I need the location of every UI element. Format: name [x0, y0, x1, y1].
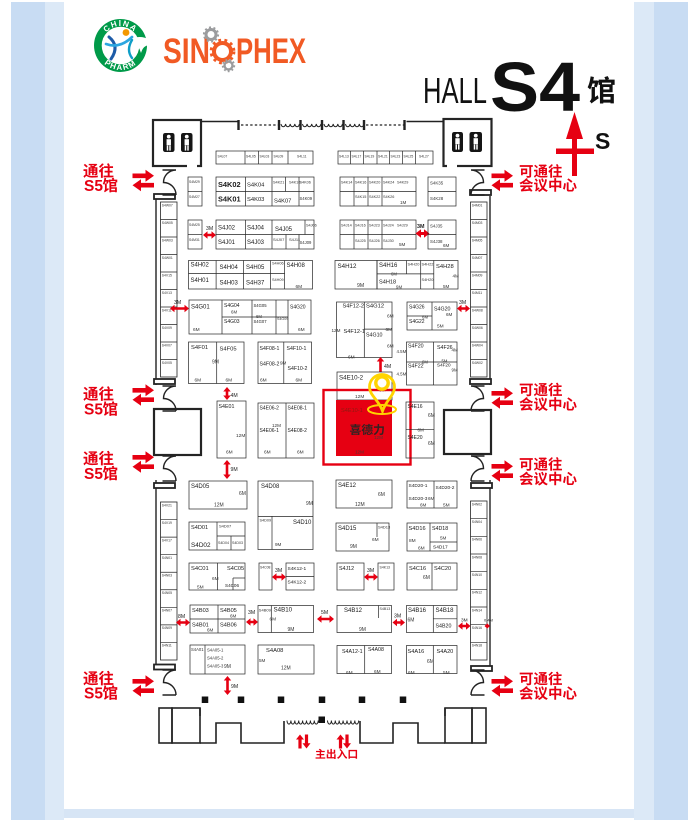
- svg-text:S4J12: S4J12: [339, 566, 354, 572]
- svg-text:S4F05: S4F05: [220, 347, 237, 353]
- svg-text:12M: 12M: [355, 502, 365, 508]
- svg-text:6M: 6M: [428, 496, 435, 501]
- svg-text:S4: S4: [490, 48, 580, 126]
- svg-text:S4K24: S4K24: [383, 181, 394, 185]
- svg-text:3M: 3M: [417, 224, 425, 230]
- svg-text:S4N18: S4N18: [472, 644, 482, 648]
- svg-text:6M: 6M: [418, 546, 425, 552]
- svg-text:12M: 12M: [355, 394, 364, 400]
- svg-text:S4W02: S4W02: [472, 361, 483, 365]
- svg-text:S4A20: S4A20: [437, 649, 454, 655]
- svg-text:S4K04: S4K04: [247, 183, 265, 189]
- svg-text:S5: S5: [84, 178, 103, 195]
- svg-text:5M: 5M: [399, 242, 406, 247]
- svg-text:S4K21: S4K21: [273, 181, 284, 185]
- svg-text:6M: 6M: [374, 669, 381, 675]
- svg-text:S4J05: S4J05: [275, 227, 293, 233]
- svg-text:S4L05: S4L05: [246, 155, 256, 159]
- svg-text:S4L11: S4L11: [297, 155, 307, 159]
- svg-text:4.5M: 4.5M: [397, 349, 407, 354]
- svg-text:3M: 3M: [275, 568, 282, 574]
- svg-text:8M: 8M: [409, 538, 416, 544]
- svg-text:S4D05: S4D05: [191, 484, 210, 490]
- svg-text:6M: 6M: [231, 310, 237, 315]
- svg-text:S4J35: S4J35: [430, 224, 443, 229]
- svg-text:S4K02: S4K02: [218, 180, 241, 189]
- svg-text:S4V11: S4V11: [162, 308, 172, 312]
- svg-text:9M: 9M: [359, 627, 366, 633]
- svg-text:S4J01: S4J01: [218, 240, 236, 246]
- svg-text:6M: 6M: [408, 670, 415, 676]
- svg-text:S4B13: S4B13: [380, 607, 391, 611]
- svg-text:S4F12-1: S4F12-1: [344, 329, 365, 335]
- svg-text:6M: 6M: [372, 537, 379, 543]
- svg-text:6M: 6M: [423, 575, 430, 581]
- svg-text:S4N11: S4N11: [162, 644, 172, 648]
- svg-text:S4H20: S4H20: [408, 262, 421, 267]
- svg-text:S4K26: S4K26: [383, 195, 394, 199]
- svg-text:4M: 4M: [231, 393, 238, 399]
- svg-text:S4M09: S4M09: [472, 273, 483, 277]
- svg-text:S4E20: S4E20: [408, 435, 423, 441]
- svg-text:S4B12: S4B12: [344, 608, 363, 614]
- svg-text:S4K15: S4K15: [355, 195, 366, 199]
- svg-text:3M: 3M: [461, 618, 468, 624]
- svg-text:S4N12: S4N12: [472, 591, 482, 595]
- svg-text:S4K29: S4K29: [397, 181, 408, 185]
- svg-text:6M: 6M: [386, 327, 393, 333]
- svg-text:8M: 8M: [178, 614, 185, 620]
- svg-text:S4N01: S4N01: [162, 556, 172, 560]
- svg-text:9M: 9M: [357, 283, 364, 289]
- svg-text:S4E06-1: S4E06-1: [260, 428, 280, 434]
- svg-text:6M: 6M: [418, 428, 425, 433]
- svg-text:S4M01: S4M01: [472, 203, 483, 207]
- svg-text:S4A08: S4A08: [368, 647, 384, 653]
- svg-text:S4G20: S4G20: [290, 305, 306, 311]
- svg-text:S4L21: S4L21: [378, 155, 388, 159]
- svg-text:5M: 5M: [321, 610, 328, 616]
- svg-text:12M: 12M: [214, 503, 224, 509]
- svg-text:6M: 6M: [443, 243, 450, 248]
- svg-text:S4L17: S4L17: [352, 155, 362, 159]
- svg-text:6M: 6M: [422, 360, 428, 365]
- svg-text:S4F01: S4F01: [191, 345, 208, 351]
- svg-text:9M: 9M: [224, 664, 231, 670]
- svg-text:S4N10: S4N10: [472, 573, 482, 577]
- svg-text:PHEX: PHEX: [236, 32, 306, 71]
- svg-text:9M: 9M: [280, 361, 287, 366]
- svg-text:S4W01: S4W01: [162, 256, 173, 260]
- svg-text:S4D15: S4D15: [338, 526, 357, 532]
- svg-text:S4F20: S4F20: [408, 344, 424, 350]
- svg-text:S4V05: S4V05: [162, 361, 172, 365]
- svg-text:S4H05: S4H05: [246, 265, 265, 271]
- svg-text:S4N08: S4N08: [472, 555, 482, 559]
- svg-text:S4J24: S4J24: [383, 224, 394, 228]
- svg-text:S4K07: S4K07: [274, 199, 291, 205]
- svg-text:S4F12-2: S4F12-2: [343, 304, 364, 310]
- svg-text:5M: 5M: [437, 324, 444, 330]
- svg-text:S4J03: S4J03: [247, 240, 265, 246]
- svg-text:S4H03: S4H03: [220, 281, 239, 287]
- svg-text:S4C08: S4C08: [260, 566, 270, 570]
- svg-text:S4H28: S4H28: [436, 264, 454, 270]
- svg-text:S4M29: S4M29: [189, 180, 200, 184]
- svg-text:9M: 9M: [212, 360, 219, 366]
- svg-text:S4K01: S4K01: [218, 195, 241, 204]
- svg-text:S4D04: S4D04: [218, 541, 229, 545]
- svg-text:S4M11: S4M11: [472, 291, 483, 295]
- svg-text:S4V07: S4V07: [162, 343, 172, 347]
- svg-text:S4E06-2: S4E06-2: [260, 406, 280, 412]
- svg-text:5M: 5M: [443, 284, 450, 289]
- svg-text:S4H37: S4H37: [246, 281, 265, 287]
- svg-text:S4D13: S4D13: [378, 525, 391, 530]
- svg-text:6M: 6M: [428, 413, 435, 419]
- svg-text:S4G12: S4G12: [366, 304, 384, 310]
- svg-text:12M: 12M: [236, 433, 245, 439]
- svg-text:6M: 6M: [346, 670, 353, 676]
- svg-text:6M: 6M: [298, 327, 305, 333]
- svg-text:S4D18: S4D18: [432, 526, 448, 532]
- svg-text:S4N07: S4N07: [162, 609, 172, 613]
- svg-text:S4C01: S4C01: [191, 566, 209, 572]
- svg-text:12M: 12M: [272, 423, 281, 428]
- svg-text:S4H16: S4H16: [379, 263, 398, 269]
- svg-text:S4V19: S4V19: [162, 521, 172, 525]
- svg-text:S4M27: S4M27: [189, 195, 200, 199]
- svg-text:S4A05-1: S4A05-1: [207, 648, 224, 653]
- svg-text:6M: 6M: [297, 450, 304, 456]
- svg-text:S4N14: S4N14: [472, 608, 482, 612]
- svg-text:S4H01: S4H01: [191, 278, 210, 284]
- svg-text:S4L25: S4L25: [404, 155, 414, 159]
- svg-text:S4A08: S4A08: [266, 648, 283, 654]
- svg-text:S4W03: S4W03: [162, 238, 173, 242]
- svg-text:S4J02: S4J02: [218, 226, 236, 232]
- svg-text:S4H09: S4H09: [272, 278, 284, 282]
- svg-text:S: S: [595, 128, 610, 154]
- svg-text:9M: 9M: [288, 627, 295, 633]
- svg-text:S5: S5: [84, 466, 103, 483]
- svg-text:5M: 5M: [442, 359, 448, 364]
- svg-text:S5: S5: [84, 686, 103, 703]
- svg-text:S4C16: S4C16: [409, 566, 426, 572]
- svg-text:S4G03: S4G03: [224, 319, 240, 325]
- svg-text:5M: 5M: [197, 585, 204, 591]
- svg-text:S4C06: S4C06: [225, 583, 239, 588]
- svg-text:3M: 3M: [394, 614, 401, 620]
- svg-text:S4G07: S4G07: [254, 319, 268, 324]
- svg-text:S4N16: S4N16: [472, 626, 482, 630]
- svg-text:S4H12: S4H12: [338, 263, 357, 270]
- svg-text:S4F08-2: S4F08-2: [260, 362, 280, 368]
- svg-text:S4N09: S4N09: [162, 626, 172, 630]
- svg-text:S4V15: S4V15: [162, 273, 172, 277]
- svg-text:9M: 9M: [396, 285, 402, 290]
- svg-text:S4N06: S4N06: [472, 538, 482, 542]
- svg-text:6M: 6M: [422, 315, 428, 320]
- svg-text:S4D09: S4D09: [260, 519, 272, 523]
- svg-text:S4A16: S4A16: [408, 649, 425, 655]
- svg-text:S4K13: S4K13: [380, 566, 391, 570]
- svg-text:S4B06: S4B06: [220, 623, 237, 629]
- svg-text:SIN: SIN: [163, 32, 210, 71]
- svg-text:S4D01: S4D01: [191, 525, 208, 531]
- svg-text:S4J07: S4J07: [273, 237, 285, 242]
- svg-text:S4G01: S4G01: [191, 305, 210, 311]
- svg-text:S4B18: S4B18: [436, 608, 455, 614]
- svg-text:4.5M: 4.5M: [397, 372, 407, 377]
- svg-text:S4M25: S4M25: [189, 223, 200, 227]
- svg-text:S4L27: S4L27: [419, 155, 429, 159]
- svg-text:S4H22: S4H22: [422, 262, 434, 267]
- svg-text:S4D20-1: S4D20-1: [409, 483, 428, 489]
- svg-text:S4M31: S4M31: [189, 238, 200, 242]
- svg-text:6M: 6M: [226, 378, 233, 384]
- svg-text:6M: 6M: [391, 272, 397, 277]
- svg-text:9M: 9M: [275, 542, 282, 547]
- svg-text:9M: 9M: [452, 368, 458, 373]
- svg-text:S4J38: S4J38: [430, 239, 443, 244]
- svg-text:S4J09: S4J09: [300, 240, 313, 245]
- svg-text:S4H20: S4H20: [422, 277, 435, 282]
- svg-text:S4N03: S4N03: [162, 574, 172, 578]
- svg-text:S4K35: S4K35: [430, 181, 444, 186]
- svg-text:S4B09: S4B09: [259, 608, 272, 613]
- svg-text:S4J16: S4J16: [355, 224, 366, 228]
- svg-text:HALL: HALL: [423, 70, 487, 111]
- svg-text:S4V21: S4V21: [162, 503, 172, 507]
- svg-text:S4H06: S4H06: [272, 262, 284, 266]
- svg-text:12M: 12M: [332, 328, 341, 333]
- svg-text:6M: 6M: [264, 450, 271, 456]
- svg-text:9M: 9M: [350, 544, 357, 550]
- svg-text:6M: 6M: [226, 450, 233, 456]
- svg-text:6M: 6M: [427, 659, 434, 665]
- svg-text:5M: 5M: [440, 536, 447, 541]
- svg-text:S4F10-1: S4F10-1: [287, 346, 307, 352]
- svg-text:S4E08-2: S4E08-2: [288, 428, 308, 434]
- svg-text:S4W08: S4W08: [472, 308, 483, 312]
- svg-text:S4L03: S4L03: [260, 155, 270, 159]
- svg-text:S4J26: S4J26: [369, 239, 380, 243]
- svg-text:S4G26: S4G26: [409, 305, 425, 311]
- svg-text:12M: 12M: [355, 450, 364, 455]
- svg-text:6M: 6M: [195, 378, 202, 384]
- svg-text:6M: 6M: [260, 378, 267, 384]
- svg-text:S4E12: S4E12: [338, 483, 357, 489]
- svg-text:S4E08-1: S4E08-1: [288, 406, 308, 412]
- svg-text:4M: 4M: [384, 364, 391, 370]
- svg-text:S4J30: S4J30: [383, 239, 394, 243]
- svg-text:5M: 5M: [443, 503, 450, 509]
- svg-text:S4V17: S4V17: [162, 538, 172, 542]
- svg-text:S4L09: S4L09: [274, 155, 284, 159]
- svg-text:S4H18: S4H18: [379, 280, 396, 286]
- svg-text:0.4M: 0.4M: [484, 618, 493, 623]
- svg-text:S4K22: S4K22: [369, 195, 380, 199]
- svg-text:S4D10: S4D10: [293, 520, 312, 526]
- svg-text:S4G04: S4G04: [224, 303, 240, 309]
- svg-text:S4B20: S4B20: [436, 624, 452, 630]
- svg-text:S4N05: S4N05: [162, 591, 172, 595]
- svg-text:S4B10: S4B10: [274, 607, 293, 614]
- svg-text:1M: 1M: [400, 200, 407, 205]
- svg-text:4M: 4M: [452, 348, 459, 353]
- svg-text:S4A12-1: S4A12-1: [342, 649, 363, 655]
- svg-text:3M: 3M: [248, 610, 255, 616]
- svg-text:9M: 9M: [231, 684, 238, 690]
- svg-text:3M: 3M: [459, 300, 466, 306]
- svg-text:S4L23: S4L23: [391, 155, 401, 159]
- svg-text:S4K03: S4K03: [247, 197, 264, 203]
- svg-text:6M: 6M: [387, 344, 394, 350]
- svg-text:S4W06: S4W06: [472, 326, 483, 330]
- svg-text:12M: 12M: [281, 666, 291, 672]
- svg-text:S4G09: S4G09: [277, 317, 288, 321]
- svg-text:S4A05-2: S4A05-2: [207, 656, 224, 661]
- svg-text:S4K09: S4K09: [300, 196, 313, 201]
- svg-text:S4V13: S4V13: [162, 291, 172, 295]
- svg-text:S4K12-1: S4K12-1: [288, 566, 307, 572]
- svg-text:6M: 6M: [446, 312, 453, 317]
- svg-text:3M: 3M: [174, 300, 181, 306]
- svg-text:6M: 6M: [193, 327, 200, 333]
- svg-text:S4D20-3: S4D20-3: [409, 496, 428, 502]
- svg-text:12M: 12M: [374, 435, 383, 440]
- svg-text:S4W07: S4W07: [162, 203, 173, 207]
- svg-text:6M: 6M: [270, 617, 277, 623]
- svg-text:S4J14: S4J14: [341, 224, 352, 228]
- svg-text:S4H08: S4H08: [287, 263, 306, 269]
- svg-text:S4G10: S4G10: [366, 333, 383, 339]
- svg-text:6M: 6M: [296, 284, 303, 290]
- svg-text:S4E10-2: S4E10-2: [339, 375, 364, 382]
- svg-text:S4M05: S4M05: [472, 238, 483, 242]
- svg-text:S4L13: S4L13: [339, 155, 349, 159]
- svg-text:S4K28: S4K28: [430, 196, 444, 201]
- svg-text:S4N04: S4N04: [472, 520, 482, 524]
- svg-text:9M: 9M: [231, 467, 238, 473]
- svg-text:S4W04: S4W04: [472, 343, 483, 347]
- svg-text:S4K20: S4K20: [369, 181, 380, 185]
- svg-text:5M: 5M: [259, 658, 266, 663]
- svg-text:S4J25: S4J25: [355, 239, 366, 243]
- svg-text:S4D02: S4D02: [191, 542, 211, 549]
- svg-text:4M: 4M: [453, 274, 460, 279]
- svg-text:S4G22: S4G22: [409, 319, 425, 325]
- svg-text:S4F26: S4F26: [437, 345, 453, 351]
- svg-text:S4D07: S4D07: [219, 524, 232, 529]
- svg-text:6M: 6M: [420, 503, 427, 508]
- svg-text:S4K06: S4K06: [300, 181, 311, 185]
- svg-text:S4G05: S4G05: [254, 303, 268, 308]
- svg-text:6M: 6M: [348, 355, 355, 361]
- svg-text:S4V09: S4V09: [162, 326, 172, 330]
- svg-text:S4L19: S4L19: [365, 155, 375, 159]
- svg-text:S4B03: S4B03: [192, 608, 209, 614]
- svg-text:6M: 6M: [230, 614, 237, 619]
- svg-text:6M: 6M: [408, 618, 415, 624]
- svg-text:S4D16: S4D16: [409, 526, 426, 532]
- svg-text:5M: 5M: [443, 670, 450, 676]
- svg-text:S4L07: S4L07: [218, 155, 228, 159]
- svg-text:S4J06: S4J06: [306, 224, 317, 228]
- svg-text:S5: S5: [84, 402, 103, 419]
- svg-text:S4J29: S4J29: [397, 224, 408, 228]
- svg-text:S4K14: S4K14: [341, 181, 352, 185]
- svg-text:S4K16: S4K16: [355, 181, 366, 185]
- svg-text:S4H04: S4H04: [220, 265, 239, 271]
- svg-text:S4D08: S4D08: [261, 484, 280, 490]
- svg-text:S4D03: S4D03: [232, 541, 243, 545]
- svg-text:6M: 6M: [428, 441, 435, 447]
- svg-text:S4E10-1: S4E10-1: [341, 408, 363, 414]
- svg-text:S4D20-2: S4D20-2: [436, 485, 455, 491]
- svg-text:S4K12-2: S4K12-2: [288, 580, 307, 586]
- svg-text:3M: 3M: [206, 226, 213, 232]
- svg-text:S4J04: S4J04: [247, 226, 265, 232]
- svg-text:6M: 6M: [378, 492, 385, 498]
- svg-text:S4J23: S4J23: [369, 224, 380, 228]
- svg-text:6M: 6M: [256, 314, 262, 319]
- svg-text:S4B16: S4B16: [408, 608, 427, 614]
- svg-text:S4M03: S4M03: [472, 221, 483, 225]
- svg-text:S4W05: S4W05: [162, 221, 173, 225]
- svg-text:S4E01: S4E01: [219, 404, 235, 410]
- svg-text:6M: 6M: [212, 576, 219, 582]
- svg-text:S4C05: S4C05: [227, 566, 244, 572]
- svg-text:S4F10-2: S4F10-2: [288, 366, 308, 372]
- svg-text:S4M07: S4M07: [472, 256, 483, 260]
- svg-text:3M: 3M: [367, 568, 374, 574]
- svg-text:6M: 6M: [387, 314, 394, 320]
- svg-text:9M: 9M: [306, 501, 313, 507]
- svg-text:6M: 6M: [239, 491, 246, 497]
- svg-text:6M: 6M: [207, 628, 214, 633]
- svg-text:S4A01: S4A01: [191, 647, 204, 652]
- svg-text:S4A05-3: S4A05-3: [207, 664, 224, 669]
- svg-text:S4H02: S4H02: [191, 263, 210, 269]
- svg-text:S4D17: S4D17: [433, 545, 448, 551]
- svg-text:6M: 6M: [296, 378, 303, 384]
- svg-text:S4E16: S4E16: [408, 404, 423, 410]
- svg-text:S4F08-1: S4F08-1: [260, 346, 280, 352]
- svg-text:S4N02: S4N02: [472, 502, 482, 506]
- svg-text:S4C20: S4C20: [434, 566, 451, 572]
